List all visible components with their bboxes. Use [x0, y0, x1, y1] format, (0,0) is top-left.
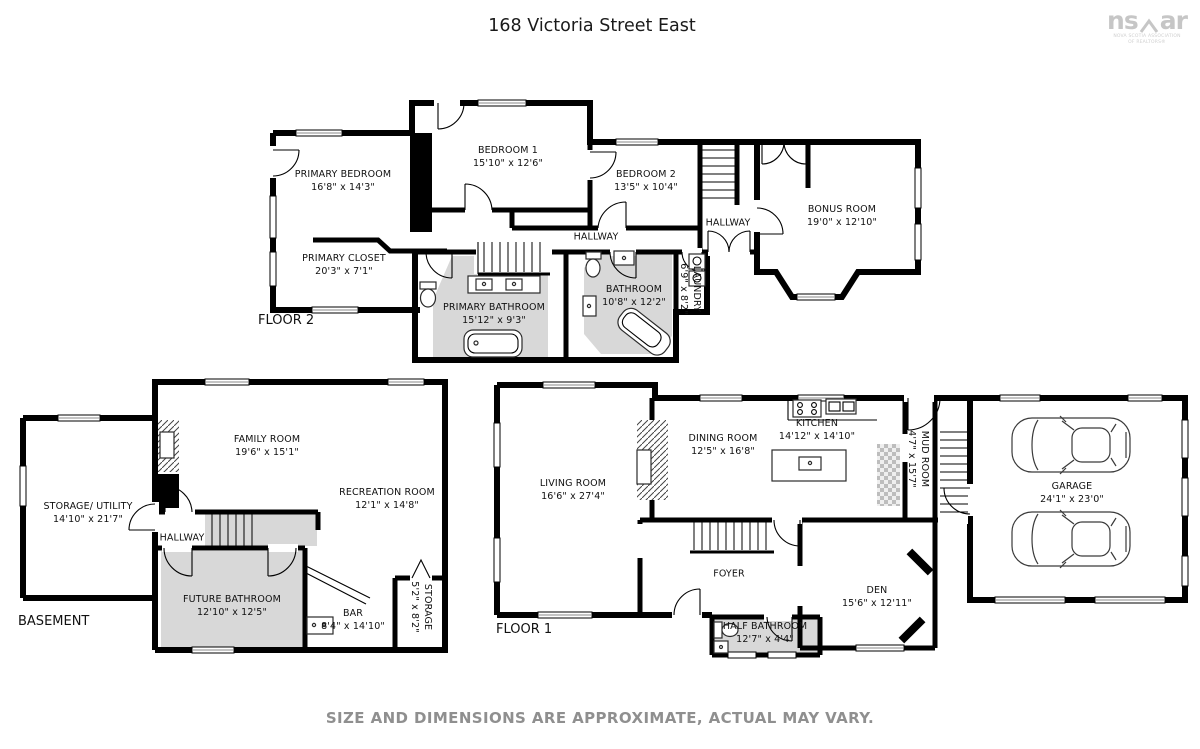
room-label-mud-room: MUD ROOM4'7" x 15'7": [904, 430, 930, 488]
room-label-half-bathroom: HALF BATHROOM12'7" x 4'4": [723, 621, 807, 647]
toilet-icon: [586, 252, 601, 259]
stairs-foyer: [690, 522, 774, 552]
logo-subtext-1: NOVA SCOTIA ASSOCIATION: [1113, 34, 1180, 39]
house-roof-icon: [1139, 17, 1159, 33]
room-label-hallway2-floor2: HALLWAY: [706, 218, 751, 231]
basement-label: BASEMENT: [18, 614, 89, 629]
room-label-storage: STORAGE5'2" x 8'2": [407, 581, 433, 632]
den-door-icon: [907, 549, 934, 576]
room-label-kitchen: KITCHEN14'12" x 14'10": [779, 418, 855, 444]
ladder-icon: [412, 560, 430, 578]
logo-subtext-2: OF REALTORS®: [1128, 40, 1166, 45]
room-label-den: DEN15'6" x 12'11": [842, 585, 912, 611]
room-label-bonus-room: BONUS ROOM19'0" x 12'10": [807, 204, 877, 230]
fireplace-icon: [637, 450, 651, 484]
pantry-tile-area: [877, 444, 900, 506]
room-label-primary-bedroom: PRIMARY BEDROOM16'8" x 14'3": [295, 169, 391, 195]
basement-stairs-area: [205, 514, 317, 546]
stairs-floor2-down: [701, 150, 736, 198]
floor1-label: FLOOR 1: [496, 622, 552, 637]
car-icon: [1012, 510, 1130, 568]
page-title: 168 Victoria Street East: [0, 16, 1184, 36]
room-label-primary-bathroom: PRIMARY BATHROOM15'12" x 9'3": [443, 302, 545, 328]
room-label-bedroom-1: BEDROOM 115'10" x 12'6": [473, 145, 543, 171]
room-label-garage: GARAGE24'1" x 23'0": [1040, 481, 1104, 507]
room-label-primary-closet: PRIMARY CLOSET20'3" x 7'1": [302, 253, 386, 279]
room-label-laundry: LAUNDRY6'9" x 8'2": [676, 263, 702, 314]
toilet-icon: [714, 622, 722, 638]
room-label-bathroom: BATHROOM10'8" x 12'2": [602, 284, 666, 310]
room-label-foyer: FOYER: [713, 569, 745, 582]
stairs-mudroom: [940, 432, 968, 512]
room-label-living-room: LIVING ROOM16'6" x 27'4": [540, 478, 606, 504]
room-label-recreation-room: RECREATION ROOM12'1" x 14'8": [339, 487, 435, 513]
room-label-dining-room: DINING ROOM12'5" x 16'8": [689, 433, 758, 459]
room-label-hallway-floor2: HALLWAY: [574, 232, 619, 245]
double-sink-icon: [826, 399, 856, 414]
room-label-family-room: FAMILY ROOM19'6" x 15'1": [234, 434, 300, 460]
stove-icon: [793, 400, 821, 417]
toilet-icon: [420, 282, 436, 289]
floorplan-drawing: [0, 0, 1200, 749]
logo-text-ar: ar: [1160, 8, 1187, 33]
room-label-future-bathroom: FUTURE BATHROOM12'10" x 12'5": [183, 594, 281, 620]
room-label-bedroom-2: BEDROOM 213'5" x 10'4": [614, 169, 678, 195]
disclaimer-text: SIZE AND DIMENSIONS ARE APPROXIMATE, ACT…: [0, 709, 1200, 727]
logo-text-ns: ns: [1107, 8, 1138, 33]
car-icon: [1012, 416, 1130, 474]
room-label-storage-utility: STORAGE/ UTILITY14'10" x 21'7": [43, 501, 132, 527]
room-label-hallway-basement: HALLWAY: [160, 533, 205, 546]
room-label-bar: BAR8'4" x 14'10": [321, 608, 385, 634]
nsar-logo: ns ar NOVA SCOTIA ASSOCIATION OF REALTOR…: [1104, 8, 1190, 46]
floor2-label: FLOOR 2: [258, 313, 314, 328]
den-door-icon: [899, 617, 926, 644]
stairs-floor2-main: [478, 242, 550, 274]
